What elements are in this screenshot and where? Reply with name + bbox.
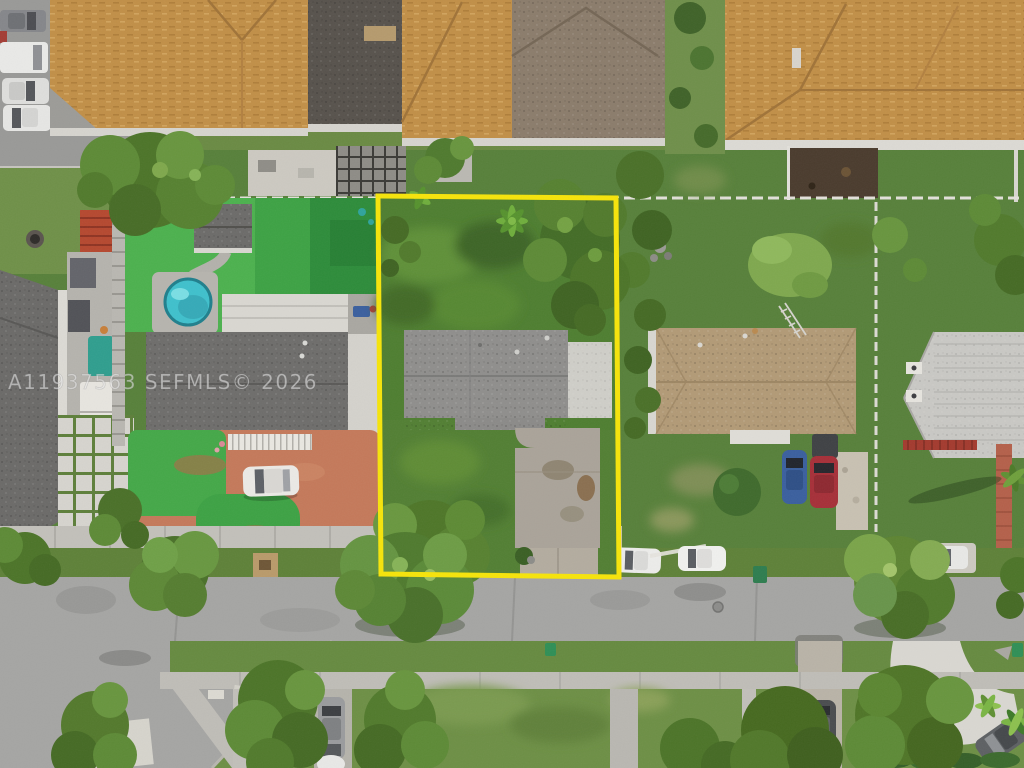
aerial-photo: A11937563 SEFMLS© 2026 bbox=[0, 0, 1024, 768]
mls-watermark: A11937563 SEFMLS© 2026 bbox=[8, 370, 318, 394]
